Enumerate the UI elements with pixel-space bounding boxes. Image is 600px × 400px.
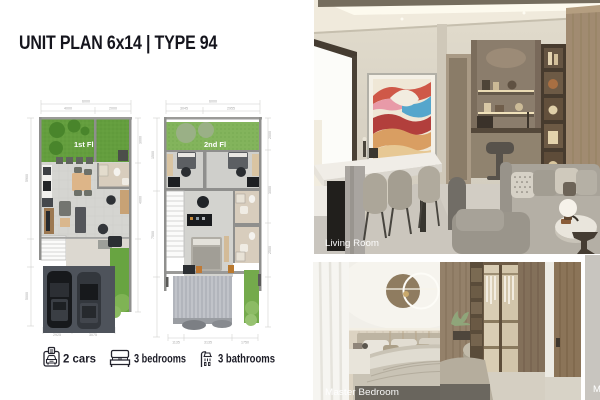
svg-text:4000: 4000	[139, 196, 143, 204]
svg-text:6000: 6000	[209, 100, 217, 104]
svg-text:1750: 1750	[241, 341, 249, 345]
svg-text:4000: 4000	[64, 107, 72, 111]
svg-text:2925: 2925	[53, 333, 61, 337]
svg-text:7500: 7500	[151, 231, 155, 239]
svg-text:3045: 3045	[180, 107, 188, 111]
svg-text:3000: 3000	[139, 136, 143, 144]
svg-text:5000: 5000	[25, 292, 29, 300]
svg-text:1st Fl: 1st Fl	[74, 140, 94, 149]
svg-text:3075: 3075	[89, 333, 97, 337]
svg-text:2500: 2500	[268, 246, 272, 254]
svg-text:Living Room: Living Room	[325, 238, 379, 249]
svg-text:Master Bedroom: Master Bedroom	[325, 387, 399, 398]
svg-text:2nd Fl: 2nd Fl	[204, 140, 226, 149]
svg-text:3000: 3000	[268, 186, 272, 194]
svg-text:3 bedrooms: 3 bedrooms	[134, 354, 186, 366]
svg-text:3135: 3135	[204, 341, 212, 345]
svg-text:6000: 6000	[82, 100, 90, 104]
svg-text:2000: 2000	[109, 107, 117, 111]
svg-text:3 bathrooms: 3 bathrooms	[218, 354, 275, 366]
svg-text:2955: 2955	[227, 107, 235, 111]
svg-text:2 cars: 2 cars	[63, 354, 96, 366]
svg-text:1500: 1500	[151, 151, 155, 159]
svg-text:1135: 1135	[172, 341, 180, 345]
svg-text:5900: 5900	[25, 174, 29, 182]
svg-text:2000: 2000	[268, 131, 272, 139]
